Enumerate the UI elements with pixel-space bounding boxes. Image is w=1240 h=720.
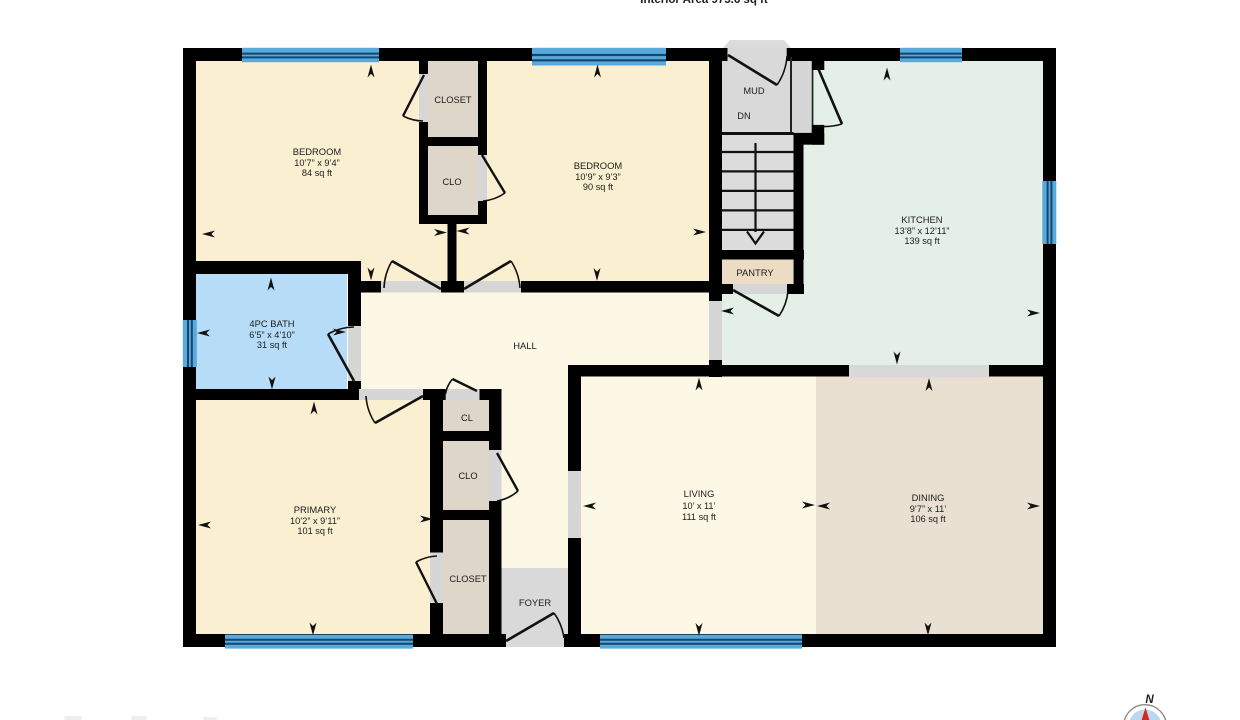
svg-text:106 sq ft: 106 sq ft	[910, 514, 946, 524]
svg-text:13’8” x 12’11”: 13’8” x 12’11”	[895, 226, 950, 236]
svg-text:HALL: HALL	[513, 340, 536, 351]
svg-text:10’7” x 9’4”: 10’7” x 9’4”	[294, 158, 339, 168]
svg-text:KITCHEN: KITCHEN	[901, 214, 942, 225]
svg-text:DN: DN	[737, 111, 750, 121]
svg-text:CL: CL	[461, 413, 473, 423]
svg-text:PRIMARY: PRIMARY	[294, 504, 337, 515]
svg-text:BEDROOM: BEDROOM	[293, 146, 342, 157]
svg-text:CLOSET: CLOSET	[434, 95, 472, 105]
svg-text:CLO: CLO	[458, 471, 477, 481]
svg-text:BEDROOM: BEDROOM	[574, 160, 623, 171]
svg-text:4PC BATH: 4PC BATH	[249, 318, 294, 329]
svg-text:PANTRY: PANTRY	[736, 267, 774, 278]
svg-text:101 sq ft: 101 sq ft	[297, 526, 333, 536]
svg-text:Interior Area 975.6 sq ft: Interior Area 975.6 sq ft	[640, 0, 768, 6]
svg-text:139 sq ft: 139 sq ft	[904, 236, 940, 246]
svg-text:6’5” x 4’10”: 6’5” x 4’10”	[249, 330, 294, 340]
svg-text:31 sq ft: 31 sq ft	[257, 340, 288, 350]
svg-text:84 sq ft: 84 sq ft	[302, 168, 333, 178]
svg-text:FOYER: FOYER	[519, 597, 552, 608]
svg-text:CLO: CLO	[442, 177, 461, 187]
svg-text:9’7” x 11’: 9’7” x 11’	[910, 504, 947, 514]
svg-text:10’ x 11’: 10’ x 11’	[682, 501, 715, 511]
svg-text:DINING: DINING	[912, 492, 945, 503]
svg-text:LIVING: LIVING	[684, 488, 715, 499]
svg-text:MUD: MUD	[743, 86, 764, 96]
svg-text:CLOSET: CLOSET	[449, 574, 487, 584]
svg-text:111 sq ft: 111 sq ft	[682, 512, 716, 522]
svg-text:10’9” x 9’3”: 10’9” x 9’3”	[575, 172, 620, 182]
svg-text:90 sq ft: 90 sq ft	[583, 182, 614, 192]
svg-text:10’2” x 9’11”: 10’2” x 9’11”	[290, 516, 340, 526]
